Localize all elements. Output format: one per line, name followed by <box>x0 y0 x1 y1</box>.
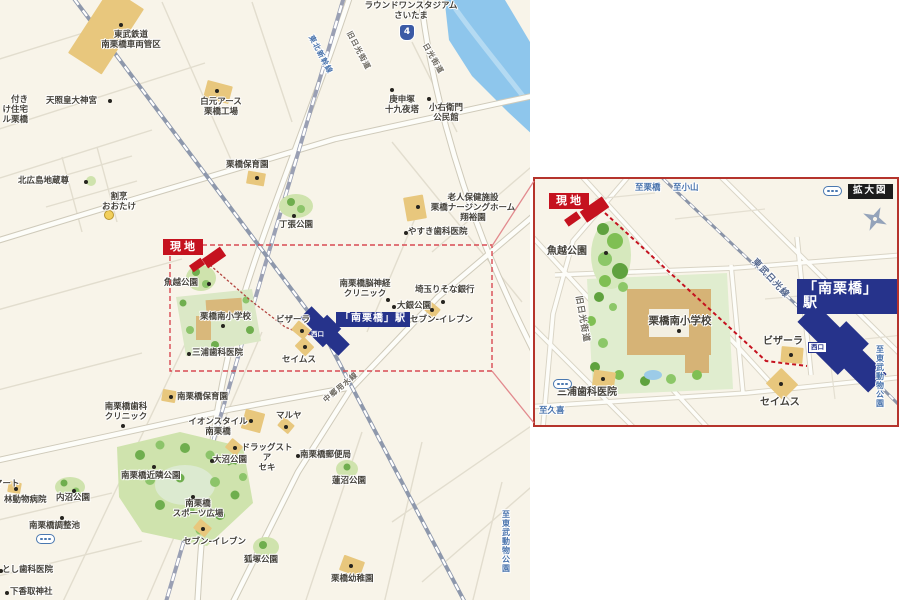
poi-label-seimus: セイムス <box>760 397 800 409</box>
direction-label-to-tobu: 至東武動物公園 <box>501 510 510 573</box>
poi-dot <box>233 446 237 450</box>
poi-dot <box>677 329 681 333</box>
poi-label-minami-hoikuen: 南栗橋保育園 <box>177 392 228 402</box>
station-exit-label: 西口 <box>311 328 324 338</box>
poi-label-uchinuma-park: 内沼公園 <box>56 493 90 503</box>
site-label: 現地 <box>163 239 203 255</box>
poi-label-yasuki: やすき歯科医院 <box>408 227 468 237</box>
poi-dot <box>441 300 445 304</box>
poi-dot <box>789 353 793 357</box>
poi-label-hakugen: 白元アース 栗橋工場 <box>195 97 247 117</box>
wide-area-map: ラウンドワンスタジアム さいたま 4 東武鉄道 南栗橋車両管区 白元アース 栗橋… <box>0 0 530 600</box>
poi-dot <box>386 298 390 302</box>
poi-dot <box>303 345 307 349</box>
poi-label-hayashi-vet: 林動物病院 <box>4 495 47 505</box>
station-label: 「南栗橋」駅 <box>797 279 897 314</box>
poi-label-uokoshi-park: 魚越公園 <box>164 278 198 288</box>
poi-label-sports: 南栗橋 スポーツ広場 <box>168 499 228 519</box>
poi-dot <box>292 214 296 218</box>
poi-label-seven-south: セブン-イレブン <box>183 537 246 547</box>
poi-dot <box>296 454 300 458</box>
poi-dot <box>779 382 783 386</box>
poi-dot <box>152 465 156 469</box>
poi-dot <box>191 495 195 499</box>
poi-label-pizala: ビザーラ <box>276 315 310 325</box>
poi-label-risona-bank: 埼玉りそな銀行 <box>415 285 475 295</box>
poi-label-seven-east: セブン-イレブン <box>410 315 473 325</box>
poi-label-round1: ラウンドワンスタジアム さいたま <box>363 1 459 21</box>
poi-dot <box>392 305 396 309</box>
poi-dot <box>5 591 9 595</box>
station-label: 「南栗橋」駅 <box>336 312 410 327</box>
poi-dot <box>390 88 394 92</box>
poi-dot <box>14 487 18 491</box>
poi-dot <box>60 516 64 520</box>
poi-label-aeon: イオンスタイル 南栗橋 <box>186 417 250 437</box>
poi-label-tobu-depot: 東武鉄道 南栗橋車両管区 <box>95 30 167 50</box>
poi-dot <box>187 352 191 356</box>
poi-label-cutoff-housing: 付き け住宅 ル栗橋 <box>0 95 28 125</box>
poi-dot <box>249 419 253 423</box>
direction-label-to-tobu: 至東武動物公園 <box>875 345 884 408</box>
poi-dot <box>601 377 605 381</box>
poi-dot <box>416 205 420 209</box>
poi-label-nursing-home: 老人保健施設 栗橋ナージングホーム 翔裕園 <box>424 193 522 223</box>
poi-label-school: 栗橋南小学校 <box>638 315 722 327</box>
poi-label-maruya: マルヤ <box>276 411 302 421</box>
poi-dot <box>284 425 288 429</box>
poi-label-seimus: セイムス <box>282 355 316 365</box>
poi-label-shimokatori: 下香取神社 <box>10 587 53 597</box>
poi-label-miura: 三浦歯科医院 <box>192 348 243 358</box>
poi-dot <box>169 395 173 399</box>
direction-label-to-kurihashi: 至栗橋 <box>635 183 661 193</box>
poi-label-oogin-park: 大銀公園 <box>397 301 431 311</box>
poi-dot <box>427 97 431 101</box>
poi-label-koshinzuka: 庚申塚 十九夜塔 <box>381 95 423 115</box>
crossing-icon <box>553 379 572 389</box>
poi-label-kappo-otake: 割烹 おおたけ <box>96 192 142 212</box>
poi-label-onuma-park: 大沼公園 <box>213 455 247 465</box>
wide-map-basemap <box>0 0 530 600</box>
poi-label-uokoshi-park: 魚越公園 <box>547 246 587 258</box>
location-map-screenshot: ラウンドワンスタジアム さいたま 4 東武鉄道 南栗橋車両管区 白元アース 栗橋… <box>0 0 900 600</box>
minor-roads <box>0 2 530 600</box>
poi-dot <box>404 231 408 235</box>
crossing-icon <box>36 534 55 544</box>
poi-dot <box>108 99 112 103</box>
poi-label-school: 栗橋南小学校 <box>200 312 251 322</box>
poi-dot <box>430 308 434 312</box>
compass-icon <box>858 202 893 237</box>
poi-dot <box>84 180 88 184</box>
poi-label-kinrin-park: 南栗橋近隣公園 <box>121 471 181 481</box>
poi-label-hasunuma-park: 蓮沼公園 <box>332 476 366 486</box>
site-label: 現地 <box>549 193 589 209</box>
enlarged-map-badge: 拡大図 <box>848 184 893 199</box>
major-roads <box>0 0 530 600</box>
enlarged-map: 拡大図 現地 魚越公園 栗橋南小学校 三浦歯科医院 ビザーラ セイムス 「南栗橋… <box>533 177 899 427</box>
poi-dot <box>604 251 608 255</box>
direction-label-to-kuki: 至久喜 <box>539 406 565 416</box>
poi-label-neuro-clinic: 南栗橋脳神経 クリニック <box>330 279 400 299</box>
poi-dot <box>300 329 304 333</box>
poi-label-toshi-dental: とし歯科医院 <box>2 565 53 575</box>
poi-label-kitahiroshima: 北広島地蔵尊 <box>18 176 69 186</box>
poi-label-chohari-park: 丁張公園 <box>279 220 313 230</box>
poi-label-koemon: 小右衛門 公民館 <box>424 103 468 123</box>
poi-dot <box>349 564 353 568</box>
poi-label-yochien: 栗橋幼稚園 <box>331 574 374 584</box>
crossing-icon <box>823 186 842 196</box>
poi-label-choseichi: 南栗橋調整池 <box>29 521 80 531</box>
poi-dot <box>221 324 225 328</box>
route4-shield: 4 <box>399 24 415 41</box>
station-exit-label: 西口 <box>808 342 827 353</box>
poi-dot <box>210 459 214 463</box>
direction-label-to-oyama: 至小山 <box>673 183 699 193</box>
poi-dot <box>207 282 211 286</box>
poi-label-kurihashi-hoikuen: 栗橋保育園 <box>226 160 269 170</box>
poi-dot <box>201 527 205 531</box>
poi-label-dental-clinic: 南栗橋歯科 クリニック <box>99 402 153 422</box>
poi-dot <box>121 424 125 428</box>
poi-dot <box>215 89 219 93</box>
poi-dot <box>255 176 259 180</box>
poi-dot <box>72 489 76 493</box>
poi-label-tensho: 天照皇大神宮 <box>46 96 97 106</box>
poi-label-post-office: 南栗橋郵便局 <box>300 450 351 460</box>
poi-dot <box>119 23 123 27</box>
poi-label-kozuka-park: 狐塚公園 <box>244 555 278 565</box>
poi-label-pizala: ビザーラ <box>763 336 803 348</box>
